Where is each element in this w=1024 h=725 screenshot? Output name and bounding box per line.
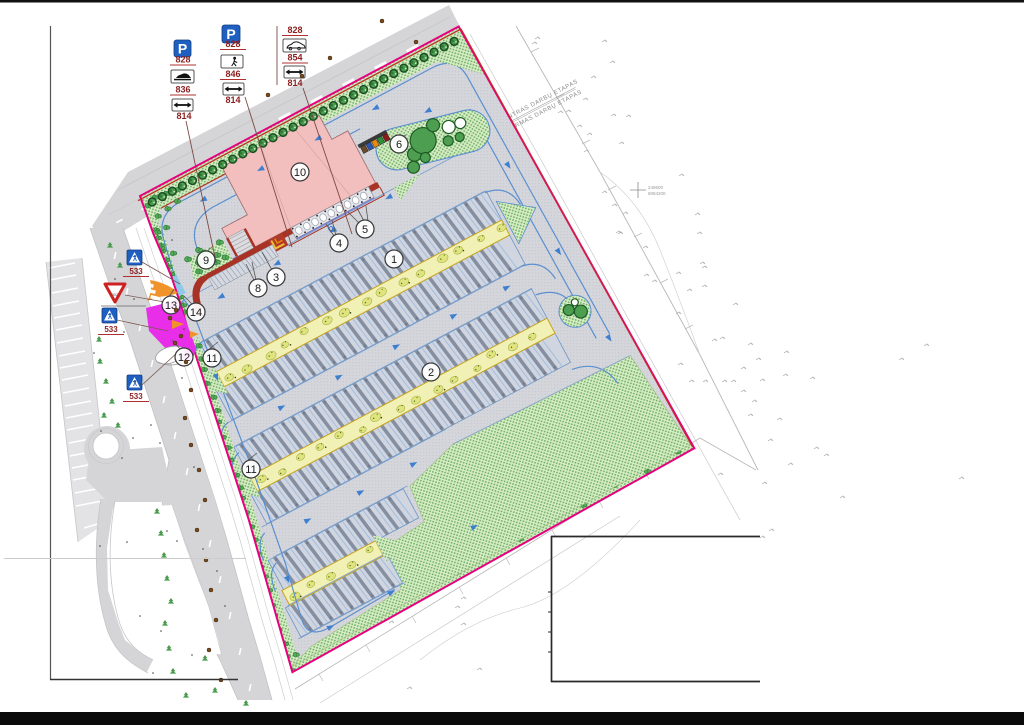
svg-text:10: 10 — [294, 167, 306, 179]
svg-text:14: 14 — [190, 307, 202, 319]
svg-text:11: 11 — [245, 464, 256, 476]
svg-text:6084200: 6084200 — [648, 191, 666, 196]
svg-text:814: 814 — [225, 95, 240, 105]
svg-text:828: 828 — [175, 55, 190, 65]
svg-text:8: 8 — [255, 283, 261, 295]
svg-text:302: 302 — [112, 293, 118, 297]
svg-text:6: 6 — [396, 139, 402, 151]
svg-text:846: 846 — [225, 69, 240, 79]
svg-text:533: 533 — [129, 267, 143, 276]
svg-text:4: 4 — [336, 238, 342, 250]
svg-text:9: 9 — [203, 255, 209, 267]
svg-text:533: 533 — [104, 325, 118, 334]
svg-text:533: 533 — [129, 392, 143, 401]
svg-text:814: 814 — [287, 78, 302, 88]
svg-text:814: 814 — [176, 111, 191, 121]
svg-text:2: 2 — [428, 367, 434, 379]
svg-text:1: 1 — [391, 254, 397, 266]
svg-text:828: 828 — [287, 25, 302, 35]
svg-text:11: 11 — [206, 353, 217, 365]
svg-text:249600: 249600 — [648, 185, 664, 190]
svg-text:5: 5 — [362, 224, 368, 236]
svg-text:828: 828 — [225, 39, 240, 49]
svg-text:836: 836 — [175, 85, 190, 95]
svg-text:854: 854 — [287, 53, 302, 63]
svg-text:3: 3 — [273, 272, 279, 284]
